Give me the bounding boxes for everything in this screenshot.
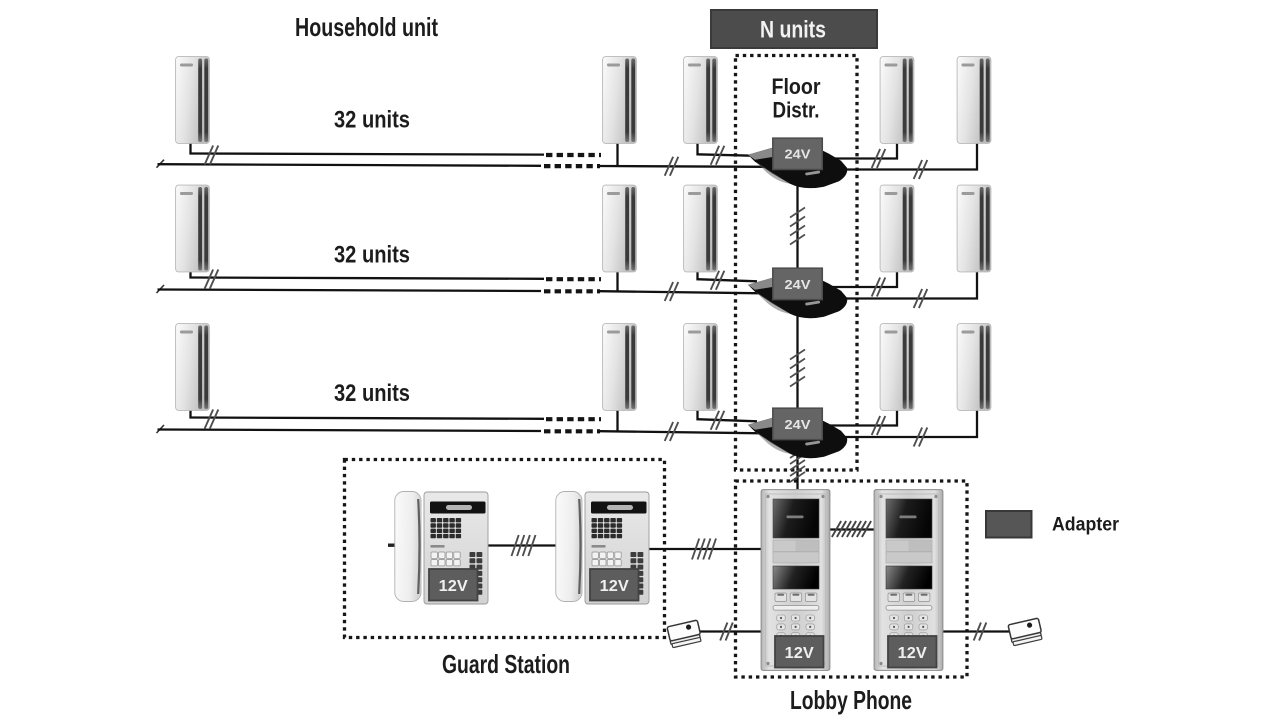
svg-text:32 units: 32 units	[334, 242, 410, 269]
svg-text:Distr.: Distr.	[773, 98, 820, 123]
svg-text:Floor: Floor	[772, 74, 821, 99]
svg-text:Lobby Phone: Lobby Phone	[790, 685, 912, 715]
svg-text:Household unit: Household unit	[295, 12, 438, 42]
svg-text:Guard Station: Guard Station	[442, 649, 570, 679]
svg-text:32 units: 32 units	[334, 107, 410, 134]
svg-text:N units: N units	[760, 17, 826, 44]
svg-text:Adapter: Adapter	[1052, 515, 1120, 536]
svg-text:32 units: 32 units	[334, 380, 410, 407]
